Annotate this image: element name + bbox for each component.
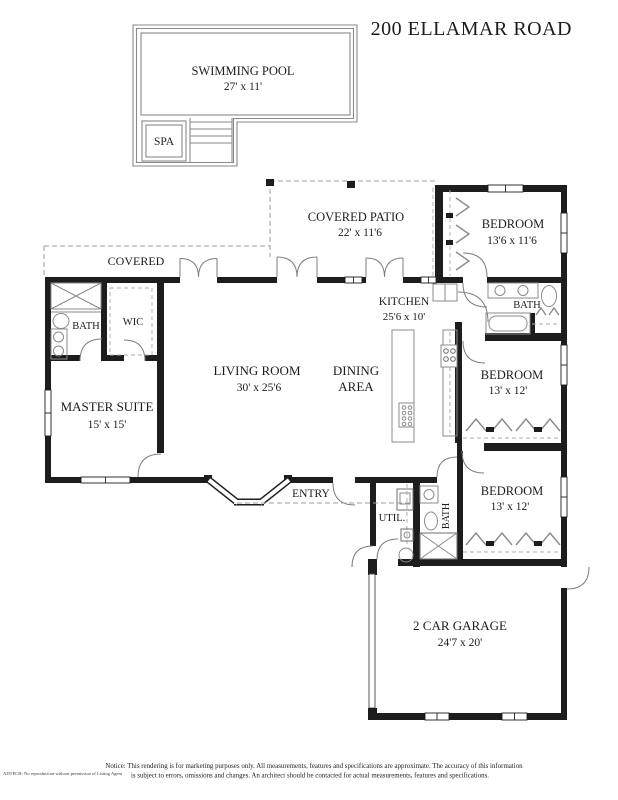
room-label-wic: WIC — [123, 317, 143, 328]
pool-dims: 27' x 11' — [224, 81, 262, 93]
room-label-living: LIVING ROOM — [213, 363, 300, 378]
notice-line-2: is subject to errors, omissions and chan… — [131, 773, 489, 780]
range — [441, 345, 457, 367]
room-dims-bedroom-e: 13' x 12' — [489, 385, 528, 397]
room-dims-bedroom-se: 13' x 12' — [491, 501, 530, 513]
room-label-bath-hall: BATH — [441, 503, 452, 529]
washer-dryer — [397, 489, 413, 510]
floor-plan-page: SWIMMING POOL 27' x 11' SPA 200 ELLAMAR … — [0, 0, 618, 800]
room-dims-living: 30' x 25'6 — [237, 382, 282, 394]
patio-post — [266, 179, 274, 186]
room-dims-covered-patio: 22' x 11'6 — [338, 227, 382, 239]
room-dims-kitchen: 25'6 x 10' — [383, 311, 425, 323]
watermark: ADTECH: No reproduction without permissi… — [3, 771, 123, 776]
vanity-master — [51, 329, 67, 359]
room-label-master: MASTER SUITE — [61, 399, 154, 414]
room-label-covered: COVERED — [108, 254, 165, 268]
toilet-master — [53, 314, 69, 329]
room-label-dining-2: AREA — [338, 379, 374, 394]
room-label-bath-master: BATH — [72, 321, 100, 332]
refrigerator — [433, 284, 457, 301]
room-dims-master: 15' x 15' — [88, 419, 127, 431]
toilet-hall-bath — [425, 512, 438, 530]
room-label-bedroom-ne: BEDROOM — [482, 217, 545, 231]
room-label-garage: 2 CAR GARAGE — [413, 618, 507, 633]
patio-post — [347, 181, 355, 188]
room-label-bedroom-se: BEDROOM — [481, 484, 544, 498]
page-title: 200 ELLAMAR ROAD — [371, 18, 572, 40]
floor-plan-canvas: SWIMMING POOL 27' x 11' SPA 200 ELLAMAR … — [0, 0, 618, 800]
swimming-pool: SWIMMING POOL 27' x 11' SPA — [133, 25, 357, 166]
bay-window — [209, 480, 289, 503]
pool-label: SWIMMING POOL — [191, 64, 294, 78]
room-label-bath-ne: BATH — [513, 300, 541, 311]
room-label-entry: ENTRY — [292, 488, 330, 500]
room-label-dining-1: DINING — [333, 363, 379, 378]
room-label-kitchen: KITCHEN — [379, 296, 430, 308]
room-label-bedroom-e: BEDROOM — [481, 368, 544, 382]
room-dims-bedroom-ne: 13'6 x 11'6 — [487, 235, 537, 247]
room-dims-garage: 24'7 x 20' — [438, 637, 482, 649]
spa-label: SPA — [154, 136, 175, 148]
shower-master — [51, 283, 101, 312]
closet-bedroom-se — [463, 533, 561, 552]
closet-bedroom-e — [463, 419, 561, 438]
bathtub-ne — [486, 313, 530, 334]
sink-hall-bath — [420, 486, 438, 503]
toilet-ne — [542, 286, 557, 307]
vanity-ne — [488, 283, 538, 298]
shower-hall-bath — [420, 533, 457, 559]
pool-steps — [190, 118, 232, 163]
notice-line-1: Notice: This rendering is for marketing … — [105, 763, 523, 770]
room-label-utility: UTIL. — [379, 513, 406, 524]
garage-side-window-wall — [369, 574, 375, 708]
room-label-covered-patio: COVERED PATIO — [308, 210, 404, 224]
